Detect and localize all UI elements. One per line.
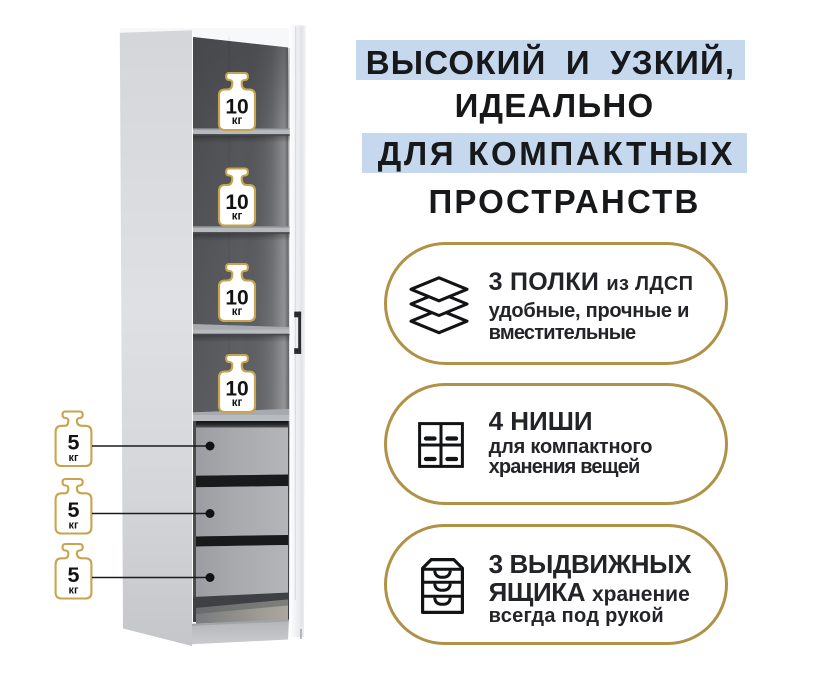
- svg-text:кг: кг: [232, 115, 243, 127]
- svg-text:кг: кг: [69, 452, 79, 464]
- svg-text:кг: кг: [232, 397, 243, 409]
- svg-text:кг: кг: [69, 520, 79, 532]
- svg-text:кг: кг: [69, 585, 79, 597]
- svg-text:кг: кг: [232, 211, 243, 223]
- svg-text:кг: кг: [232, 306, 243, 318]
